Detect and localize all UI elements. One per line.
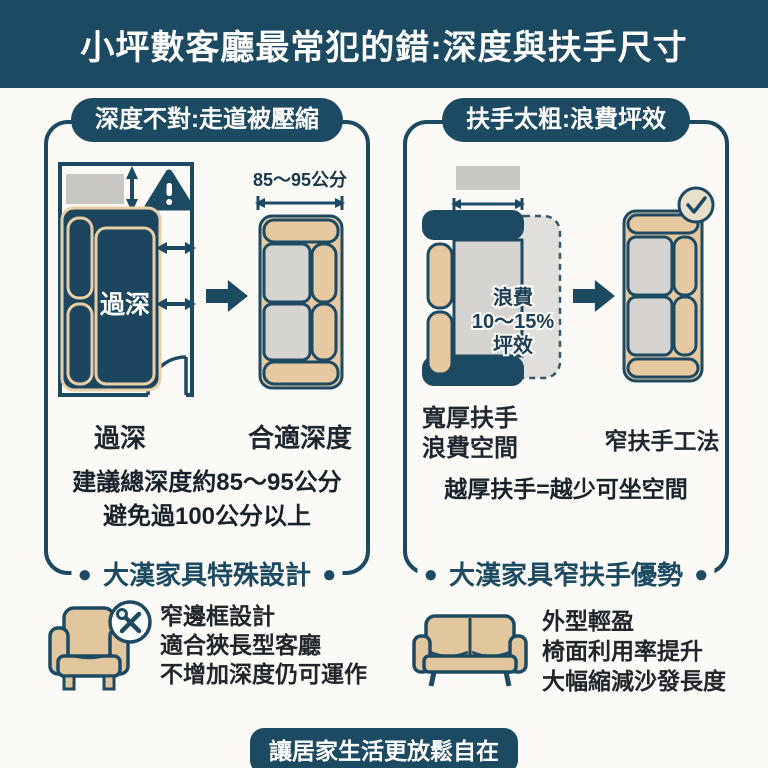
svg-text:浪費: 浪費 [493,285,533,309]
svg-text:10〜15%: 10〜15% [472,311,554,333]
feature-line: 大幅縮減沙發長度 [542,666,726,696]
checkmark-icon [679,188,713,222]
bullet-icon: ● [322,558,337,592]
bullet-icon: ● [77,558,92,592]
page-title: 小坪數客廳最常犯的錯:深度與扶手尺寸 [80,20,687,69]
bullet-icon: ● [694,558,709,592]
sofa-too-deep: 過深 [62,208,160,390]
armchair-tools-icon [42,598,154,698]
sofa-correct-depth [260,216,342,388]
tools-badge-icon [110,602,150,642]
feature-line: 適合狹長型客廳 [160,631,367,660]
feature-line: 外型輕盈 [542,606,726,636]
infographic: 小坪數客廳最常犯的錯:深度與扶手尺寸 深度不對:走道被壓縮 [0,0,768,768]
caption-narrow-arms: 窄扶手工法 [582,422,742,456]
svg-text:坪效: 坪效 [493,333,533,357]
sofa-too-deep-label: 過深 [100,291,150,319]
feature-line: 不增加深度仍可運作 [160,660,367,689]
caption-too-deep: 過深 [70,418,170,455]
transition-arrow-right [573,280,615,312]
floorplan-too-deep-diagram: 過深 [52,158,202,400]
feature-line: 窄邊框設計 [160,602,367,631]
footer-banner: 讓居家生活更放鬆自在 [250,728,518,768]
transition-arrow-left [206,280,248,312]
panel-depth-badge: 深度不對:走道被壓縮 [71,98,343,142]
depth-advice-line1: 建議總深度約85〜95公分 [48,462,366,497]
narrow-arm-advantages: 外型輕盈 椅面利用率提升 大幅縮減沙發長度 [542,606,726,696]
warning-icon [148,173,190,207]
header-band: 小坪數客廳最常犯的錯:深度與扶手尺寸 [0,0,768,88]
depth-advice-line2: 避免過100公分以上 [48,496,366,531]
measure-arrow-icon [255,196,345,210]
bullet-icon: ● [423,558,438,592]
thick-armrest-diagram: 浪費 10〜15% 坪效 [420,164,566,394]
vertical-gap-arrow-icon [126,166,138,212]
correct-depth-diagram: 85〜95公分 [252,166,348,392]
caption-thick-arms: 寬厚扶手 浪費空間 [410,404,530,464]
caption-correct-depth: 合適深度 [220,418,380,455]
sofa-narrow-arms [624,211,702,381]
tv-block [66,174,124,204]
panel-depth-mistake: 深度不對:走道被壓縮 [44,120,370,575]
panel-armrest-mistake: 扶手太粗:浪費坪效 浪費 10〜15% 坪效 [403,120,729,575]
loveseat-icon [412,612,530,690]
panel-armrest-badge: 扶手太粗:浪費坪效 [442,98,690,142]
armrest-advice: 越厚扶手=越少可坐空間 [407,470,725,504]
footer-slogan: 讓居家生活更放鬆自在 [269,732,499,768]
feature-line: 椅面利用率提升 [542,636,726,666]
section-title-special-design: ● 大漢家具特殊設計 ● [71,558,342,592]
narrow-armrest-diagram [620,183,718,389]
special-design-features: 窄邊框設計 適合狹長型客廳 不增加深度仍可運作 [160,602,367,689]
depth-measure-label: 85〜95公分 [253,170,347,190]
measure-arrow-icon [451,198,525,210]
tv-block [456,166,520,190]
section-title-narrow-arm-advantage: ● 大漢家具窄扶手優勢 ● [417,558,714,592]
